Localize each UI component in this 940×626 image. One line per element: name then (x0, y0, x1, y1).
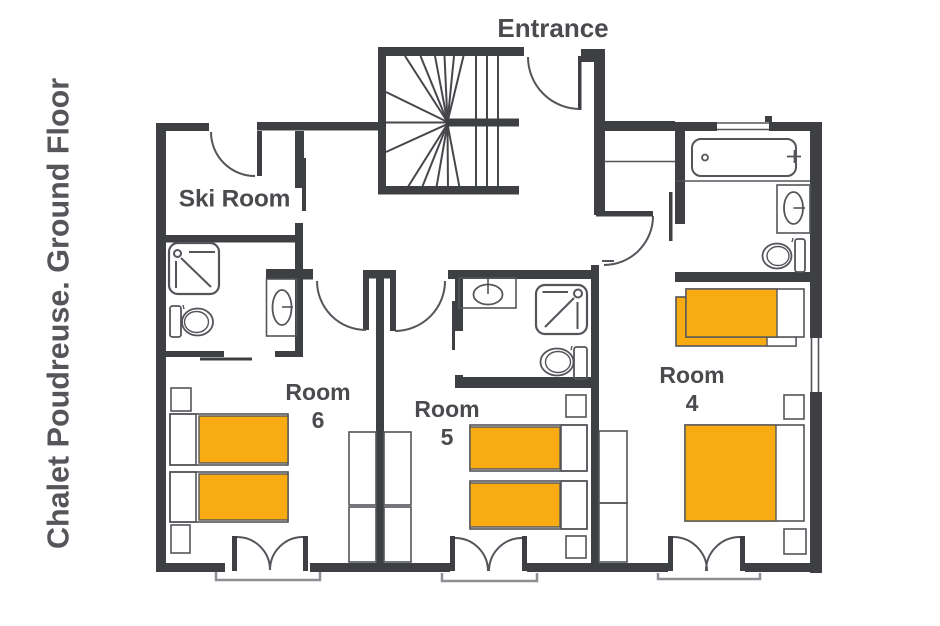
svg-text:Room: Room (414, 396, 479, 422)
svg-text:Entrance: Entrance (497, 13, 608, 43)
svg-text:Ski Room: Ski Room (179, 186, 290, 213)
svg-text:Room: Room (285, 379, 350, 405)
svg-text:4: 4 (686, 390, 699, 416)
svg-text:5: 5 (441, 424, 454, 450)
svg-text:6: 6 (312, 407, 325, 433)
svg-text:Chalet Poudreuse. Ground Floo: Chalet Poudreuse. Ground Floor (42, 78, 76, 549)
svg-text:Room: Room (659, 362, 724, 388)
